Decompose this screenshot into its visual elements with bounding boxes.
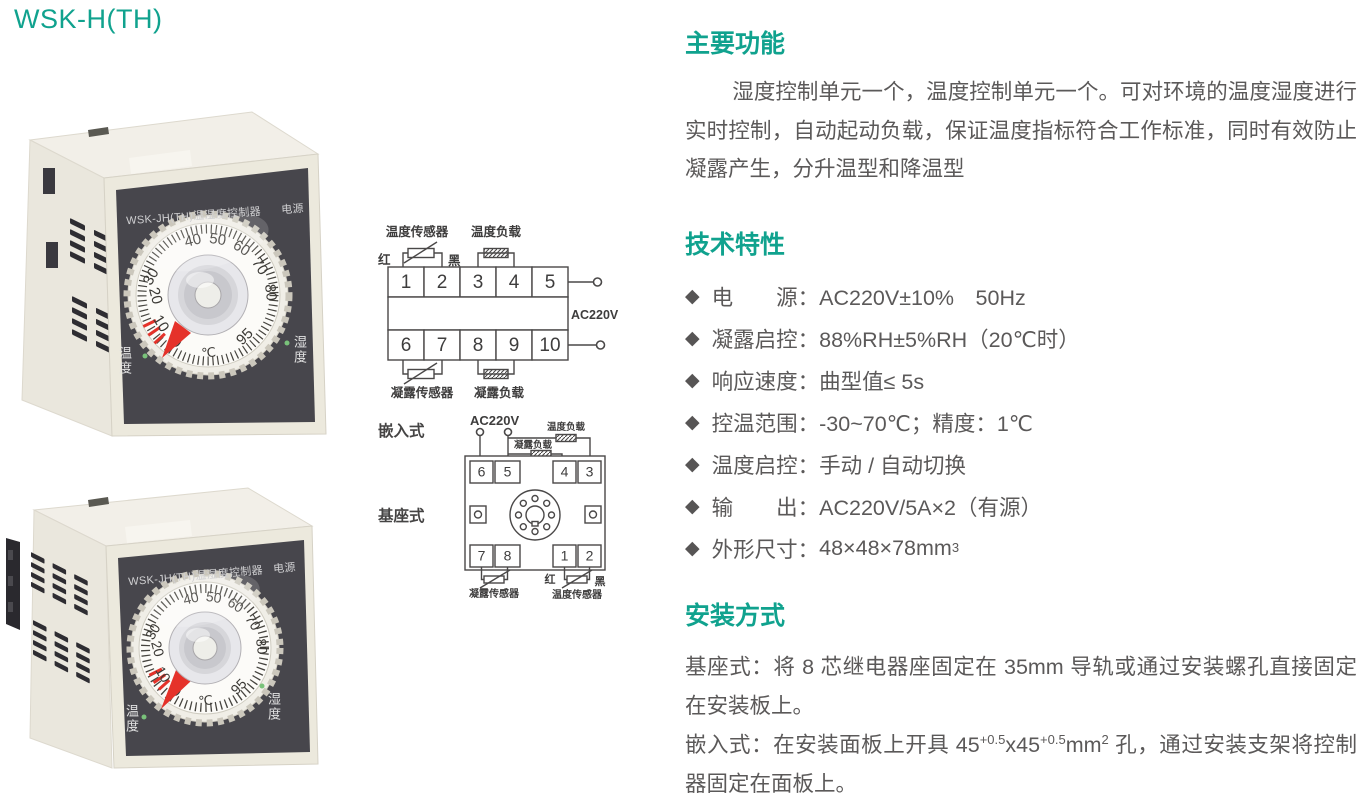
spec-item: ◆外形尺寸：48×48×78mm3: [685, 527, 1357, 569]
product-photo-top: 40 50 60 70 80 95 0 10 20 30 ℃: [0, 100, 335, 445]
led-temp: [142, 715, 147, 720]
diamond-bullet-icon: ◆: [685, 539, 700, 558]
spec-value: -30~70℃；精度：1℃: [819, 407, 1033, 438]
dial-unit: ℃: [201, 344, 217, 360]
section-heading-features: 主要功能: [685, 29, 785, 59]
terminal-block: 1 2 3 4 5 6 7 8 9 10: [388, 267, 568, 360]
housing-side-face: [22, 140, 112, 436]
text-column: 主要功能 湿度控制单元一个，温度控制单元一个。可对环境的温度湿度进行实时控制，自…: [685, 0, 1357, 804]
terminal-number: 5: [545, 272, 556, 293]
led-temp: [143, 354, 148, 359]
mount-tab: [43, 168, 55, 194]
panel-temp-label: 温度: [122, 704, 141, 734]
dial-number: 80: [253, 638, 271, 656]
diamond-bullet-icon: ◆: [685, 497, 700, 516]
spec-value: 48×48×78mm: [819, 536, 952, 561]
pin-number: 6: [478, 464, 486, 480]
datasheet-page: WSK-H(TH): [0, 0, 1361, 804]
section-heading-install: 安装方式: [685, 601, 785, 631]
spec-item: ◆响应速度：曲型值≤ 5s: [685, 359, 1357, 401]
panel-humidity-label: 湿度: [264, 692, 283, 722]
led-humidity: [260, 684, 265, 689]
pin-number: 4: [561, 464, 569, 480]
spec-value: AC220V/5A×2（有源）: [819, 491, 1042, 522]
cond-sensor-symbol: [403, 360, 442, 384]
install-embed-text: 嵌入式：在安装面板上开具 45: [685, 733, 980, 757]
panel-power-label: 电源: [281, 200, 305, 218]
controller-illustration-1: 40 50 60 70 80 95 0 10 20 30 ℃: [0, 100, 335, 445]
black-wire-label: 黑: [595, 575, 606, 588]
pin-number: 3: [586, 464, 594, 480]
spec-label: 响应速度：: [712, 365, 820, 396]
install-base-paragraph: 基座式：将 8 芯继电器座固定在 35mm 导轨或通过安装螺孔直接固定在安装板上…: [685, 648, 1357, 725]
terminal-number: 9: [509, 335, 520, 356]
cond-sensor-label: 凝露传感器: [391, 385, 454, 400]
install-embed-paragraph: 嵌入式：在安装面板上开具 45+0.5x45+0.5mm2 孔，通过安装支架将控…: [685, 726, 1357, 803]
pin-number: 5: [504, 464, 512, 480]
temp-load-symbol: [478, 249, 514, 268]
red-wire-label: 红: [378, 252, 391, 267]
panel-temp-label: 温度: [115, 346, 134, 376]
terminal-number: 8: [473, 335, 484, 356]
tolerance-superscript: +0.5: [1040, 732, 1066, 747]
diamond-bullet-icon: ◆: [685, 371, 700, 390]
ac-voltage-label: AC220V: [571, 308, 619, 322]
mount-tab: [46, 242, 58, 268]
relay-socket: 6 5 4 3 7 8 1 2: [465, 456, 605, 570]
terminal-number: 10: [539, 335, 560, 356]
diamond-bullet-icon: ◆: [685, 329, 700, 348]
spec-label: 温度启控：: [712, 449, 820, 480]
diamond-bullet-icon: ◆: [685, 413, 700, 432]
temp-load-label: 温度负载: [471, 224, 522, 239]
spec-label: 电 源：: [712, 281, 820, 312]
spec-label: 外形尺寸：: [712, 533, 820, 564]
spec-value: 手动 / 自动切换: [819, 449, 966, 480]
cond-load-label: 凝露负载: [474, 385, 525, 400]
pin-number: 7: [478, 548, 486, 564]
features-paragraph: 湿度控制单元一个，温度控制单元一个。可对环境的温度湿度进行实时控制，自动起动负载…: [685, 73, 1357, 189]
spec-list: ◆电 源：AC220V±10% 50Hz ◆凝露启控：88%RH±5%RH（20…: [685, 275, 1357, 569]
cond-sensor-label: 凝露传感器: [469, 587, 520, 600]
spec-item: ◆控温范围：-30~70℃；精度：1℃: [685, 401, 1357, 443]
spec-label: 凝露启控：: [712, 323, 820, 354]
pin-number: 2: [586, 548, 594, 564]
spec-item: ◆输 出：AC220V/5A×2（有源）: [685, 485, 1357, 527]
pin-number: 8: [504, 548, 512, 564]
ac-voltage-label: AC220V: [470, 413, 519, 428]
product-photo-bottom: 40 50 60 70 80 95 0 10 20 30 ℃: [0, 480, 335, 804]
diamond-bullet-icon: ◆: [685, 455, 700, 474]
temp-sensor-label: 温度传感器: [552, 588, 603, 601]
spec-value: 曲型值≤ 5s: [819, 365, 924, 396]
cond-load-label: 凝露负载: [514, 439, 553, 451]
temp-sensor-label: 温度传感器: [386, 224, 449, 239]
terminal-number: 4: [509, 272, 520, 293]
black-wire-label: 黑: [448, 253, 461, 268]
spec-item: ◆凝露启控：88%RH±5%RH（20℃时）: [685, 317, 1357, 359]
unit-superscript: 2: [1102, 732, 1109, 747]
socket-diagram-base: AC220V 温度负载 凝露负载 6 5 4 3: [373, 413, 623, 613]
spec-value: 88%RH±5%RH（20℃时）: [819, 323, 1080, 354]
install-embed-text: x45: [1005, 733, 1040, 757]
diamond-bullet-icon: ◆: [685, 287, 700, 306]
pin-number: 1: [561, 548, 569, 564]
terminal-number: 3: [473, 272, 484, 293]
spec-label: 控温范围：: [712, 407, 820, 438]
section-heading-specs: 技术特性: [685, 230, 785, 260]
dial-number: 80: [261, 283, 280, 302]
dial-unit: ℃: [198, 692, 214, 708]
page-title: WSK-H(TH): [14, 4, 162, 35]
panel-humidity-label: 湿度: [290, 335, 309, 365]
spec-value: AC220V±10% 50Hz: [819, 281, 1026, 312]
temp-sensor-symbol: [403, 242, 442, 267]
spec-item: ◆电 源：AC220V±10% 50Hz: [685, 275, 1357, 317]
tolerance-superscript: +0.5: [980, 732, 1006, 747]
spec-label: 输 出：: [712, 491, 820, 522]
cond-load-symbol: [478, 360, 514, 379]
terminal-number: 2: [437, 272, 448, 293]
terminal-number: 6: [401, 335, 412, 356]
wiring-diagram-embedded: 温度传感器 温度负载 红 黑 1 2 3 4 5 6 7 8 9 10: [373, 217, 631, 407]
install-embed-text: mm: [1066, 733, 1102, 757]
terminal-number: 7: [437, 335, 448, 356]
panel-power-label: 电源: [272, 559, 296, 577]
controller-illustration-2: 40 50 60 70 80 95 0 10 20 30 ℃: [0, 480, 335, 804]
led-humidity: [285, 341, 290, 346]
terminal-number: 1: [401, 272, 412, 293]
red-wire-label: 红: [545, 572, 556, 586]
temp-load-label: 温度负载: [547, 421, 586, 433]
spec-item: ◆温度启控：手动 / 自动切换: [685, 443, 1357, 485]
